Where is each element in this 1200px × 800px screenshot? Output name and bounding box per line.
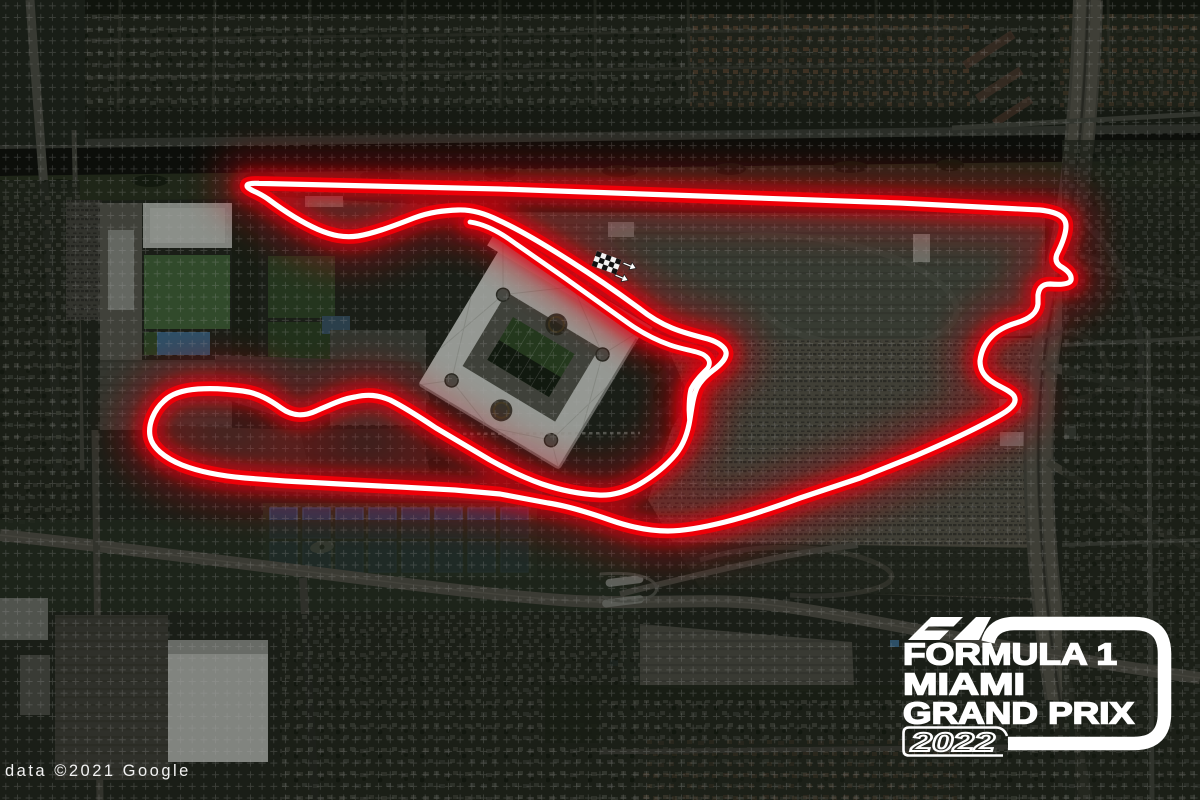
svg-text:2022: 2022 xyxy=(910,727,996,757)
svg-text:data ©2021 Google: data ©2021 Google xyxy=(5,762,191,780)
svg-text:GRAND PRIX: GRAND PRIX xyxy=(903,696,1134,731)
